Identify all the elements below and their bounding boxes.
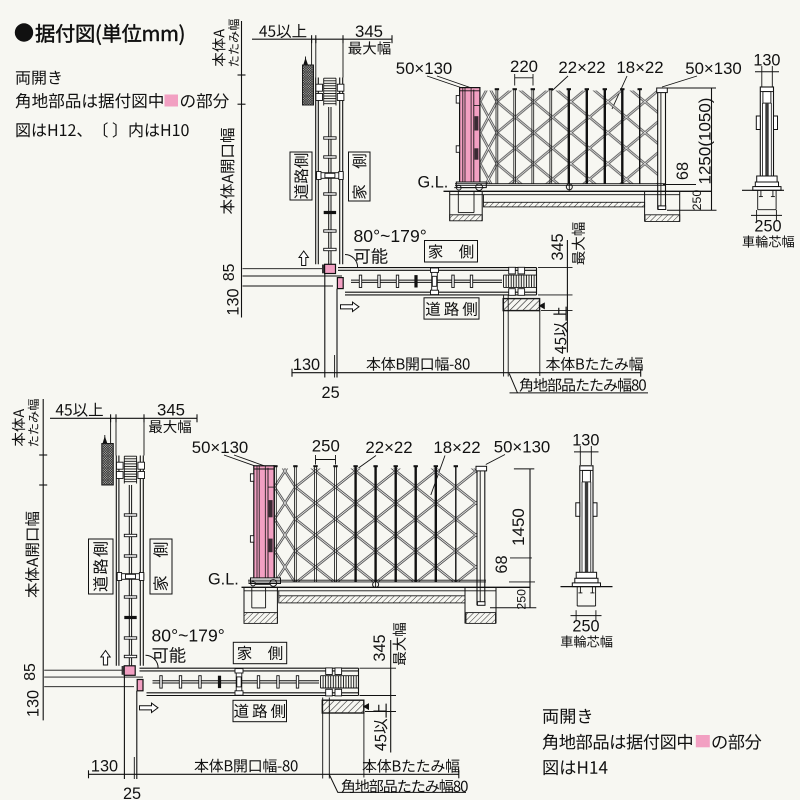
- svg-text:345: 345: [371, 634, 389, 661]
- svg-text:50×130: 50×130: [494, 438, 550, 457]
- svg-text:G.L.: G.L.: [208, 571, 239, 589]
- svg-text:22×22: 22×22: [558, 58, 605, 77]
- svg-text:345: 345: [355, 22, 383, 41]
- svg-text:50×130: 50×130: [396, 59, 452, 78]
- svg-text:80°~179°: 80°~179°: [354, 226, 427, 246]
- svg-text:130: 130: [25, 690, 43, 717]
- svg-text:22×22: 22×22: [365, 438, 412, 457]
- svg-text:1450: 1450: [509, 508, 528, 546]
- svg-text:G.L.: G.L.: [418, 174, 449, 192]
- svg-text:50×130: 50×130: [685, 59, 741, 78]
- svg-text:130: 130: [572, 432, 599, 450]
- svg-text:130: 130: [293, 356, 320, 374]
- svg-text:25: 25: [123, 785, 141, 800]
- svg-text:130: 130: [225, 288, 243, 315]
- svg-text:345: 345: [157, 401, 185, 420]
- svg-text:130: 130: [91, 758, 118, 776]
- svg-text:68: 68: [493, 555, 511, 573]
- svg-text:85: 85: [22, 663, 39, 681]
- svg-text:50×130: 50×130: [192, 438, 248, 457]
- svg-text:25: 25: [322, 384, 340, 402]
- svg-text:18×22: 18×22: [616, 58, 663, 77]
- svg-text:220: 220: [510, 57, 538, 76]
- svg-text:250: 250: [515, 589, 529, 610]
- svg-text:130: 130: [753, 51, 780, 69]
- svg-text:85: 85: [221, 263, 238, 281]
- svg-text:80°~179°: 80°~179°: [152, 626, 225, 646]
- svg-text:345: 345: [549, 233, 567, 260]
- svg-text:1250(1050): 1250(1050): [695, 98, 714, 185]
- svg-text:18×22: 18×22: [433, 438, 480, 457]
- svg-text:250: 250: [690, 190, 704, 211]
- svg-text:250: 250: [312, 437, 340, 456]
- svg-text:250: 250: [572, 618, 599, 636]
- svg-text:250: 250: [754, 218, 781, 236]
- svg-text:68: 68: [674, 162, 692, 180]
